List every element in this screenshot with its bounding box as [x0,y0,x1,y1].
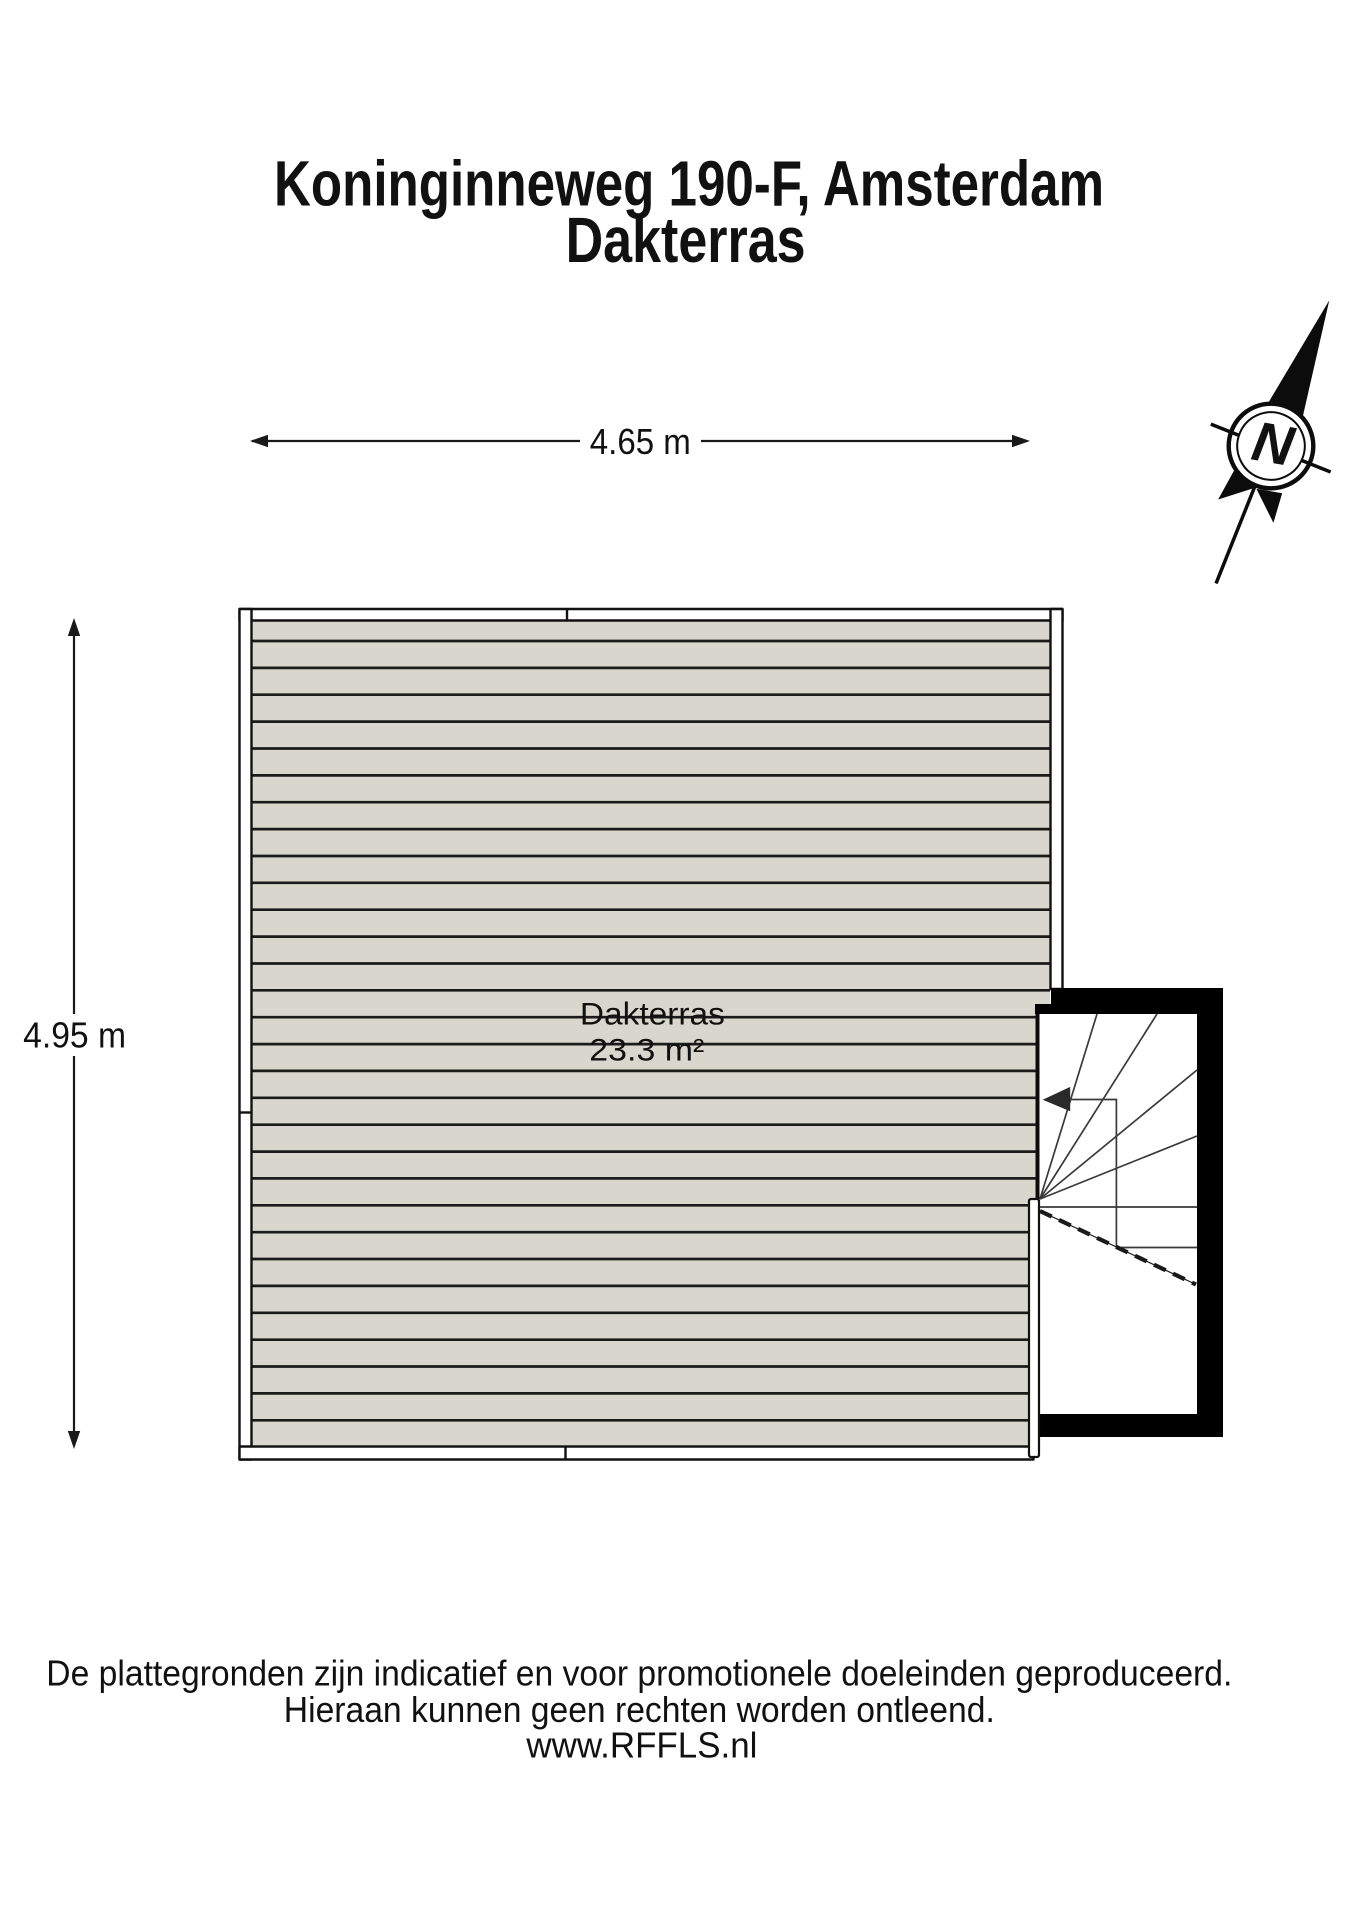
svg-text:www.RFFLS.nl: www.RFFLS.nl [525,1724,757,1765]
svg-text:4.95 m: 4.95 m [23,1014,126,1055]
svg-text:4.65 m: 4.65 m [590,421,691,462]
svg-text:Dakterras: Dakterras [566,204,806,276]
svg-text:Dakterras: Dakterras [580,995,725,1031]
svg-text:De plattegronden zijn indicati: De plattegronden zijn indicatief en voor… [46,1653,1232,1694]
svg-text:23.3 m²: 23.3 m² [589,1031,704,1067]
